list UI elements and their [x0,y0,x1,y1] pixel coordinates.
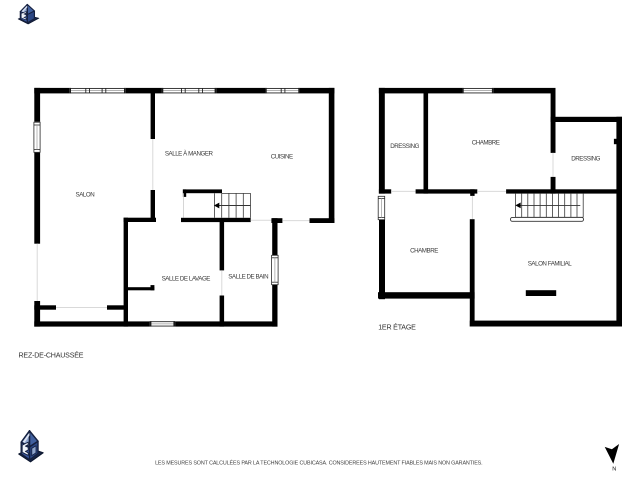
svg-text:1ER ÉTAGE: 1ER ÉTAGE [378,323,416,332]
svg-text:CHAMBRE: CHAMBRE [472,140,500,147]
svg-text:SALLE DE LAVAGE: SALLE DE LAVAGE [162,276,211,283]
svg-text:DRESSING: DRESSING [390,143,419,150]
svg-text:N: N [612,467,616,473]
svg-text:SALLE DE BAIN: SALLE DE BAIN [228,273,268,280]
svg-text:SALON FAMILIAL: SALON FAMILIAL [528,261,573,268]
svg-text:CUISINE: CUISINE [271,154,293,161]
svg-text:SALON: SALON [76,191,95,198]
svg-text:REZ-DE-CHAUSSÉE: REZ-DE-CHAUSSÉE [19,350,84,359]
svg-text:SALLE À MANGER: SALLE À MANGER [165,151,214,158]
svg-text:CHAMBRE: CHAMBRE [410,248,438,255]
svg-text:LES MESURES SONT CALCULÉES PAR: LES MESURES SONT CALCULÉES PAR LA TECHNO… [155,460,482,467]
svg-text:DRESSING: DRESSING [571,156,600,163]
